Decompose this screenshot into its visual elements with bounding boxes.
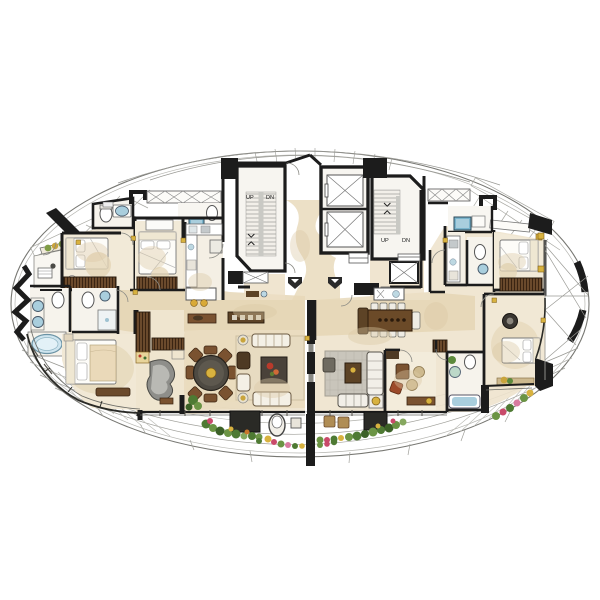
svg-text:DN: DN xyxy=(402,238,410,244)
svg-text:UP: UP xyxy=(246,195,254,201)
svg-text:UP: UP xyxy=(381,238,389,244)
svg-text:DN: DN xyxy=(266,195,274,201)
